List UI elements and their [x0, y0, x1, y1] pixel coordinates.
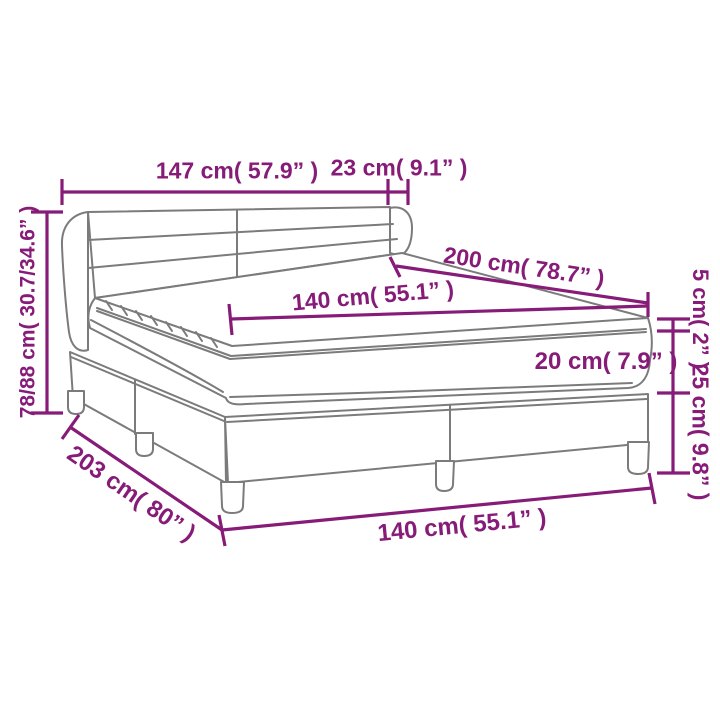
dimension-diagram: 147 cm( 57.9” ) 23 cm( 9.1” ) 200 cm( 78…: [0, 0, 720, 720]
dim-overall-height-label: 78/88 cm( 30.7/34.6” ): [18, 206, 39, 418]
leg-front-middle: [436, 461, 454, 491]
dim-headboard-depth-label: 23 cm( 9.1” ): [331, 157, 468, 180]
leg-front-right: [628, 442, 649, 474]
dim-mattress-thickness-label: 20 cm( 7.9” ): [535, 350, 678, 374]
headboard-left-roll: [62, 212, 88, 351]
leg-back-left: [68, 391, 84, 414]
headboard-right-roll: [390, 207, 412, 256]
dim-topper-thickness-label: 5 cm( 2” ): [689, 269, 711, 369]
leg-front-corner: [221, 482, 244, 513]
dim-headboard-width-label: 147 cm( 57.9” ): [156, 160, 318, 183]
leg-left-middle: [136, 433, 153, 456]
dim-right-heights-line: [657, 319, 690, 473]
dim-base-height-label: 25 cm( 9.8” ): [689, 364, 712, 501]
